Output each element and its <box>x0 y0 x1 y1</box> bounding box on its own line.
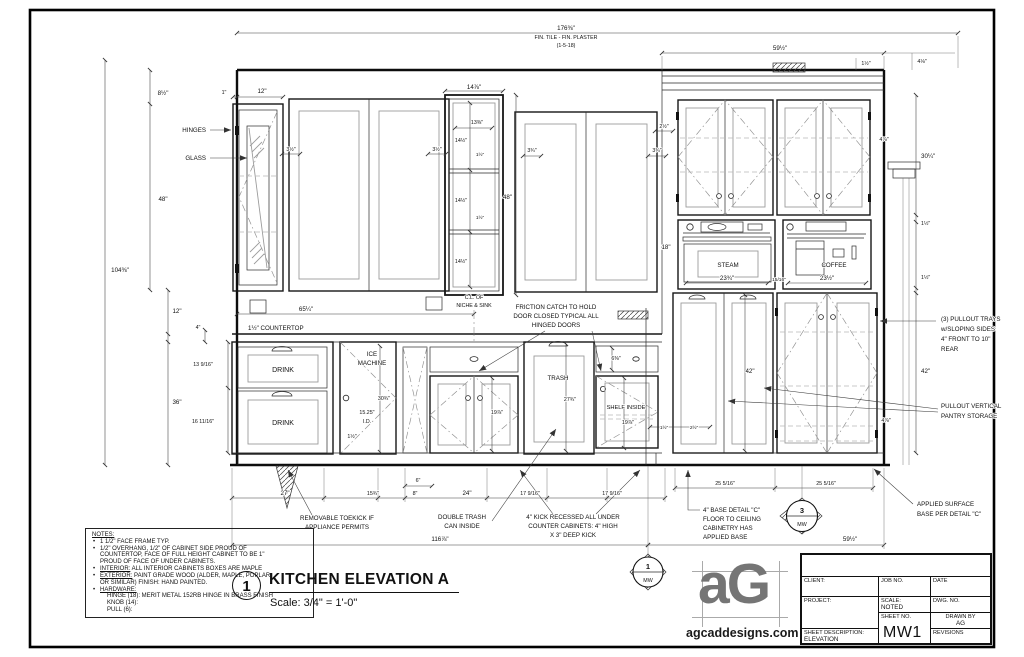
dimension-text: 176⅜" FIN. TILE - FIN. PLASTER (1-5-18) … <box>111 25 1002 584</box>
dim-label: 1½" <box>476 214 485 221</box>
dim-label: 15¾" <box>367 491 379 497</box>
dim-label: 1" <box>222 90 227 96</box>
dim-label: 19⅞" <box>491 410 503 416</box>
logo-crosshair <box>779 561 780 627</box>
note-line: PROUD OF FACE OF UNDER CABINETS. <box>100 559 309 566</box>
finish-note: FIN. TILE - FIN. PLASTER <box>535 35 598 41</box>
callout-pullout-trays: REAR <box>941 346 959 353</box>
callout-friction-catch: FRICTION CATCH TO HOLD <box>516 304 597 311</box>
dim-label: 23¾" <box>720 275 734 282</box>
detail-marker-3-number: 3 <box>800 506 804 515</box>
detail-marker-1-sheet: MW <box>643 578 652 584</box>
sheet-number: MW1 <box>883 624 922 642</box>
dim-label: 4⅞" <box>879 137 888 143</box>
date-field: DATE <box>930 576 990 596</box>
base-filler-door <box>403 347 427 453</box>
callout-pantry-storage: PULLOUT VERTICAL <box>941 403 1002 410</box>
dim-label: 3½" <box>432 146 441 153</box>
dim-label: 4⅛" <box>917 59 926 65</box>
callout-friction-catch: DOOR CLOSED TYPICAL ALL <box>513 313 599 320</box>
base-shelf-unit <box>596 346 658 448</box>
note-line: 1 1/2" FACE FRAME TYP. <box>100 539 309 546</box>
dim-label: 1½" <box>347 433 356 440</box>
dim-label: 48" <box>158 196 167 203</box>
dim-label: 3¾" <box>652 148 661 154</box>
dim-label: 1½" <box>476 151 485 158</box>
glass-label: GLASS <box>185 155 206 162</box>
dwg-no-field: DWG. NO. <box>930 596 990 612</box>
dim-label: 27" <box>280 490 289 497</box>
project-field: PROJECT: <box>802 596 878 628</box>
drawn-by-field: DRAWN BYAG <box>930 612 990 628</box>
centerline-label: NICHE & SINK <box>456 303 492 309</box>
ice-machine-label: MACHINE <box>358 360 387 367</box>
dim-label: 16 11/16" <box>192 419 214 425</box>
finish-note-date: (1-5-18) <box>557 43 576 49</box>
dim-label: 104⅜" <box>111 267 129 274</box>
callout-double-trash: CAN INSIDE <box>444 523 479 530</box>
note-lead: EXTERIOR: <box>100 573 132 579</box>
dim-label: 19⅞" <box>622 420 634 426</box>
callout-toekick: APPLIANCE PERMITS <box>305 524 369 531</box>
drawing-sheet: 176⅜" FIN. TILE - FIN. PLASTER (1-5-18) … <box>0 0 1024 657</box>
callout-pullout-trays: 4" FRONT TO 10" <box>941 336 990 343</box>
shelf-inside-label: SHELF INSIDE <box>607 405 646 411</box>
dim-label: 1½" <box>861 60 870 67</box>
dim-label: 8½" <box>158 90 169 97</box>
callout-base-detail: FLOOR TO CEILING <box>703 516 761 523</box>
dim-label: 1½" <box>921 220 930 227</box>
countertop-label: 1½" COUNTERTOP <box>248 325 304 332</box>
view-number-bubble: 1 <box>232 571 261 600</box>
callout-applied-surface: BASE PER DETAIL "C" <box>917 511 981 518</box>
dim-label: 13⅜" <box>471 120 483 126</box>
dim-label: 116⅞" <box>431 536 448 543</box>
right-wall-items <box>888 162 920 465</box>
callout-kick: X 3" DEEP KICK <box>550 532 597 539</box>
cabinet-run-outline <box>230 63 890 465</box>
note-lead: INTERIOR: <box>100 566 130 572</box>
callout-pullout-trays: w/SLOPING SIDES <box>940 326 995 333</box>
sheet-no-field: SHEET NO.MW1 <box>878 612 930 643</box>
callout-friction-catch: HINGED DOORS <box>532 322 580 329</box>
dim-label: 14½" <box>455 258 467 265</box>
note-lead: HARDWARE: <box>100 587 136 593</box>
glass-display-cabinet <box>233 104 283 291</box>
toekick-wedge <box>276 466 298 508</box>
callout-double-trash: DOUBLE TRASH <box>438 514 486 521</box>
trash-label: TRASH <box>548 375 569 382</box>
dim-label: 25 5/16" <box>816 481 836 487</box>
ag-logo: aG <box>698 556 768 613</box>
dim-label: 42" <box>921 368 930 375</box>
dim-label: 3¾" <box>527 148 536 154</box>
hinges-label: HINGES <box>182 127 206 134</box>
ice-machine-label: ICE <box>367 351 377 358</box>
view-title: KITCHEN ELEVATION A <box>269 571 459 593</box>
dim-label: 12" <box>172 308 181 315</box>
dim-label: 6" <box>416 478 421 484</box>
wall-cabinets-left-pair <box>289 99 449 291</box>
title-block: CLIENT: JOB NO. DATE PROJECT: SCALE:NOTE… <box>800 553 992 645</box>
drink-drawer-label: DRINK <box>272 420 294 427</box>
dim-label: 14⅞" <box>467 84 481 91</box>
dim-label: 24" <box>462 490 471 497</box>
detail-marker-1-number: 1 <box>646 562 650 571</box>
dim-label: 30¼" <box>921 153 935 160</box>
callout-kick: 4" KICK RECESSED ALL UNDER <box>526 514 620 521</box>
callout-kick: COUNTER CABINETS: 4" HIGH <box>528 523 618 530</box>
dim-label: 176⅜" <box>557 25 575 32</box>
view-scale: Scale: 3/4" = 1'-0" <box>270 597 357 609</box>
dim-label: 14½" <box>455 197 467 204</box>
dim-label: 6⅜" <box>611 356 620 362</box>
sheet-no-label: SHEET NO. <box>881 614 928 620</box>
sheet-description-value: ELEVATION <box>804 636 876 643</box>
note-line: 1/2" OVERHANG, 1/2" OF CABINET SIDE PROU… <box>100 546 309 553</box>
logo-crosshair <box>692 617 788 618</box>
dim-label: 17 9/16" <box>520 491 540 497</box>
logo-website: agcaddesigns.com <box>686 626 799 640</box>
centerline-label: C.L. OF <box>465 295 484 301</box>
detail-marker-3-sheet: MW <box>797 522 806 528</box>
callout-pullout-trays: (3) PULLOUT TRAYS <box>941 316 1000 323</box>
dim-label: 13 9/16" <box>193 362 213 368</box>
dim-label: 3½" <box>286 146 295 153</box>
dim-label: 23½" <box>820 275 834 282</box>
hinge-mark <box>235 126 239 135</box>
dim-label: 14½" <box>455 137 467 144</box>
dim-label: 1½" <box>921 274 930 281</box>
outlet-box <box>250 300 266 313</box>
dim-label: 4⅞" <box>881 418 890 424</box>
vent-hatch-top <box>773 63 805 72</box>
dim-label: 48" <box>503 194 512 201</box>
sheet-description-field: SHEET DESCRIPTION:ELEVATION <box>802 628 878 643</box>
hinge-mark <box>235 264 239 273</box>
dim-label: 59½" <box>843 536 857 543</box>
callout-base-detail: APPLIED BASE <box>703 534 747 541</box>
countertop <box>232 334 662 342</box>
wall-cabinets-center-pair <box>515 112 657 292</box>
base-drink-drawers <box>232 342 333 454</box>
dim-label: 17 9/16" <box>602 491 622 497</box>
base-trash-unit <box>524 342 594 454</box>
client-field: CLIENT: <box>802 576 878 596</box>
dim-label: 65¼" <box>299 306 313 313</box>
dim-label: 2½" <box>690 424 699 431</box>
callout-pantry-storage: PANTRY STORAGE <box>941 413 997 420</box>
dim-label: 15/16" <box>772 277 786 283</box>
drink-drawer-label: DRINK <box>272 367 294 374</box>
dim-label: 8" <box>413 491 418 497</box>
callout-toekick: REMOVABLE TOEKICK IF <box>300 515 374 522</box>
section-markers <box>630 308 822 590</box>
dim-label: 12" <box>257 88 266 95</box>
callout-applied-surface: APPLIED SURFACE <box>917 501 974 508</box>
pantry-pullout-doors <box>673 293 773 453</box>
dim-label: 36" <box>172 399 181 406</box>
dim-label: 18" <box>661 244 670 251</box>
pantry-x-cabinet <box>775 293 878 453</box>
dim-label: 59½" <box>773 45 787 52</box>
callout-base-detail: 4" BASE DETAIL "C" <box>703 507 760 514</box>
scale-value: NOTED <box>881 604 928 611</box>
base-diamond-doors-unit <box>430 347 518 453</box>
callout-base-detail: CABINETRY HAS <box>703 525 753 532</box>
dim-label: 25 5/16" <box>715 481 735 487</box>
dim-label: 27¾" <box>564 397 576 403</box>
dim-label: 2½" <box>659 123 668 130</box>
dim-label: 15.25" <box>359 410 374 416</box>
dim-label: 42" <box>745 368 754 375</box>
revisions-field: REVISIONS <box>930 628 990 643</box>
drawn-by-value: AG <box>933 620 988 627</box>
titleblock-blank <box>802 555 990 576</box>
dim-label: 30¾" <box>378 396 390 402</box>
dim-label: 4" <box>196 325 201 331</box>
dim-label: I.D. <box>363 419 371 425</box>
job-no-field: JOB NO. <box>878 576 930 596</box>
toekick-and-base <box>232 453 884 508</box>
notes-heading: NOTES: <box>92 532 309 539</box>
steam-oven-label: STEAM <box>717 262 738 269</box>
note-line: COUNTERTOP, FACE OF FULL HEIGHT CABINET … <box>100 552 309 559</box>
scale-field: SCALE:NOTED <box>878 596 930 612</box>
upper-right-cabinets <box>676 100 871 215</box>
coffee-machine-label: COFFEE <box>821 262 846 269</box>
outlet-box <box>426 297 442 310</box>
vent-hatch-backsplash <box>618 311 648 319</box>
dim-label: 1½" <box>660 424 669 431</box>
